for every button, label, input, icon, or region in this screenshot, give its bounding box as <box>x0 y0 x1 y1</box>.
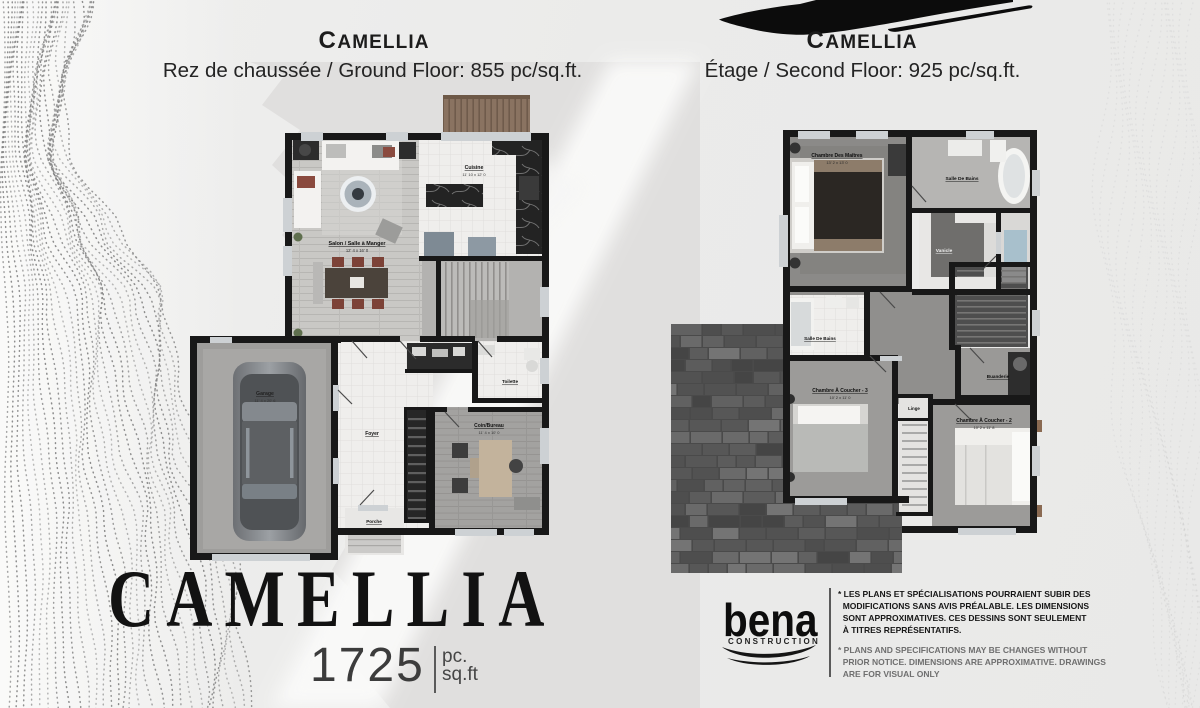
svg-text:Chambre À Coucher - 3: Chambre À Coucher - 3 <box>812 387 868 394</box>
svg-text:12' 4 x 16' 0: 12' 4 x 16' 0 <box>346 248 369 253</box>
svg-text:Buanderie: Buanderie <box>987 374 1010 379</box>
svg-text:10' 2 x 11' 0: 10' 2 x 11' 0 <box>829 395 851 400</box>
svg-text:Salle De Bains: Salle De Bains <box>945 176 978 182</box>
svg-text:13' 2 x 13' 0: 13' 2 x 13' 0 <box>826 160 848 165</box>
svg-text:Chambre Des Maîtres: Chambre Des Maîtres <box>811 153 862 159</box>
svg-text:Garage: Garage <box>256 391 274 397</box>
svg-text:Salon / Salle à Manger: Salon / Salle à Manger <box>329 241 387 247</box>
svg-text:Coin/Bureau: Coin/Bureau <box>474 423 504 429</box>
svg-text:11' 10 x 12' 0: 11' 10 x 12' 0 <box>462 172 486 177</box>
svg-text:Cuisine: Cuisine <box>465 165 484 171</box>
svg-text:10' 2 x 11' 8: 10' 2 x 11' 8 <box>973 425 995 430</box>
svg-text:Chambre À Coucher - 2: Chambre À Coucher - 2 <box>956 417 1012 424</box>
svg-text:11' 4 x 20' 6: 11' 4 x 20' 6 <box>254 398 276 403</box>
svg-text:Salle De Bains: Salle De Bains <box>804 336 836 341</box>
svg-text:Porche: Porche <box>366 519 382 524</box>
svg-text:Vanicle: Vanicle <box>936 248 953 254</box>
svg-text:Toilette: Toilette <box>502 379 518 384</box>
svg-text:Linge: Linge <box>908 406 920 411</box>
svg-text:11' 4 x 10' 0: 11' 4 x 10' 0 <box>478 430 500 435</box>
svg-text:Foyer: Foyer <box>365 431 379 437</box>
